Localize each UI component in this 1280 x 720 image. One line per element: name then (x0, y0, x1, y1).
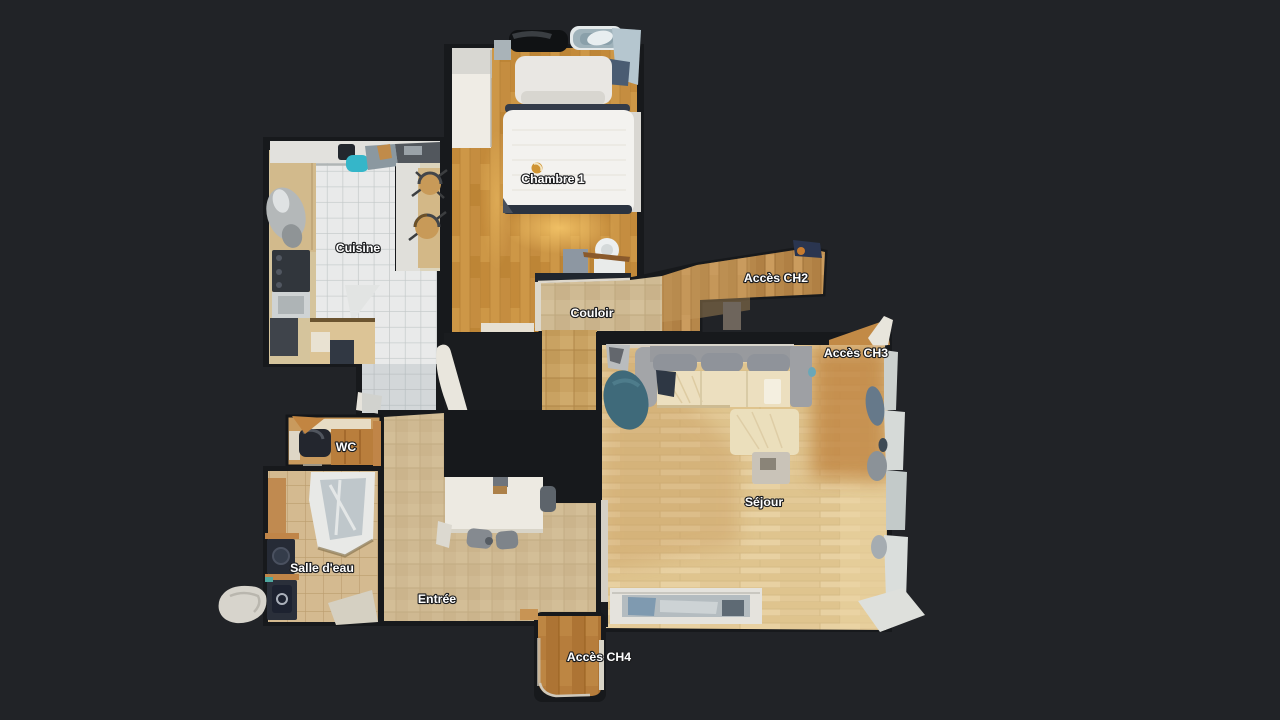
svg-text:Entrée: Entrée (418, 592, 456, 606)
svg-text:Cuisine: Cuisine (336, 241, 381, 255)
svg-text:Séjour: Séjour (745, 495, 783, 509)
svg-text:WC: WC (336, 440, 357, 454)
svg-text:Accès CH2: Accès CH2 (744, 271, 808, 285)
svg-text:Couloir: Couloir (570, 306, 613, 320)
svg-text:Accès CH4: Accès CH4 (567, 650, 631, 664)
svg-text:Accès CH3: Accès CH3 (824, 346, 888, 360)
svg-text:Chambre 1: Chambre 1 (521, 172, 585, 186)
svg-text:Salle d'eau: Salle d'eau (290, 561, 354, 575)
